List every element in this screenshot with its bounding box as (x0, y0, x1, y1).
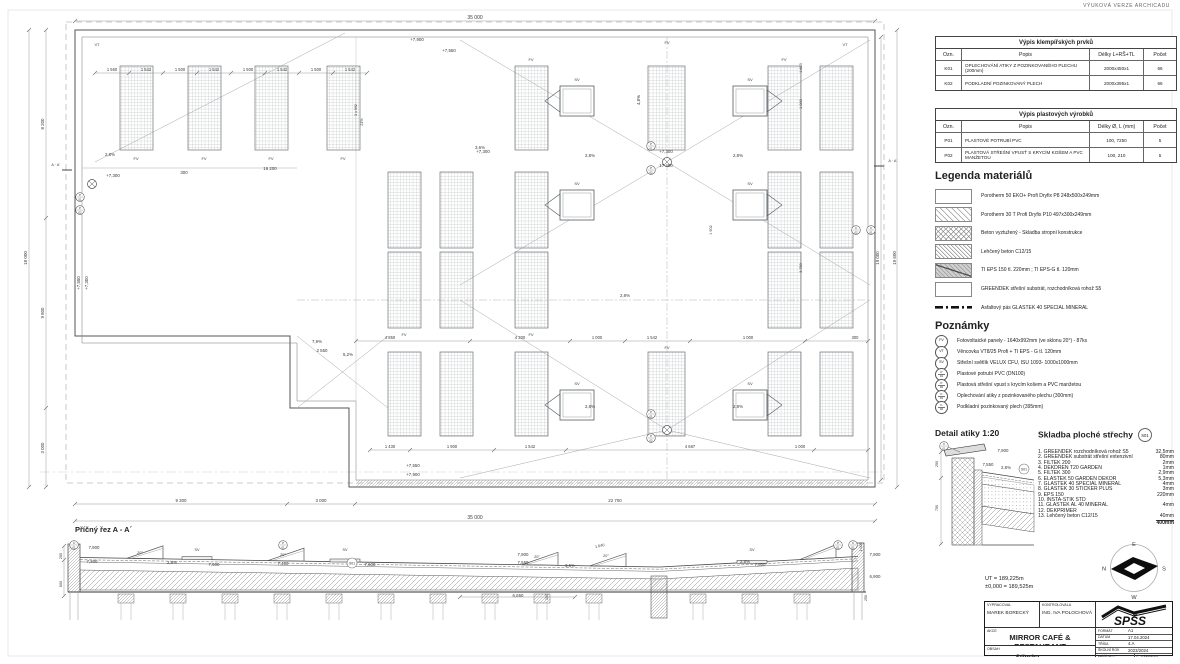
scale-number-row: MĚŘÍTKO 1:50 Č. VÝKRESU 07 (1096, 654, 1172, 657)
annotation-text: SV (574, 381, 580, 386)
project-cell: AKCE MIRROR CAFÉ & RESTAURANT (985, 628, 1096, 646)
drawing-number-cell: Č. VÝKRESU 07 (1135, 654, 1173, 657)
content-cell: OBSAH Střecha (985, 646, 1096, 657)
plan-annotation: K02 (852, 226, 861, 235)
annotation-text: +7,300 (659, 149, 673, 154)
plan-annotation: 2,8% (733, 404, 743, 409)
pv-panel (820, 252, 853, 328)
table-cell: P02 (936, 148, 962, 162)
ref-marker-number: 01 (649, 414, 653, 418)
note-label: Fotovoltaické panely - 1640x992mm (ve sk… (957, 338, 1087, 344)
pv-panel (188, 66, 221, 150)
level-datum: UT = 189,225m ±0,000 = 189,525m (985, 575, 1033, 591)
plan-annotation: 4 300 (515, 335, 526, 340)
section-annotation: 2,8% (167, 560, 177, 565)
plan-annotation: P01 (647, 142, 656, 151)
annotation-text: +7,900 (406, 472, 420, 477)
section-annotation: SV (749, 548, 755, 552)
plan-annotation: 1 500 (175, 67, 186, 72)
annotation-text: 1 542 (647, 335, 658, 340)
note-item: SVStřešní světlík VELUX CFU, ISU 1093- 1… (935, 358, 1078, 368)
note-label: Podkladní pozinkovaný plech (395mm) (957, 404, 1043, 410)
ref-marker-letter: K (870, 226, 872, 230)
zero-level: ±0,000 = 189,525m (985, 583, 1033, 591)
skylight (560, 86, 594, 116)
ref-marker-number: 01 (281, 545, 285, 549)
annotation-text: 20° (534, 555, 540, 559)
plan-annotation: 9 800 (40, 307, 45, 319)
ref-marker-letter: K (855, 226, 857, 230)
detail-annotation: 7,900 (998, 448, 1010, 453)
beam-stub (170, 594, 186, 603)
beam-stub (378, 594, 394, 603)
date-value: 17.04.2024 (1128, 635, 1150, 640)
plan-annotation: 1 000 (799, 99, 803, 109)
annotation-text: 1 500 (311, 67, 322, 72)
annotation-text: +7,900 (410, 37, 424, 42)
column-header: Popis (962, 121, 1090, 132)
ref-marker-letter: P (79, 206, 81, 210)
annotation-text: SV (342, 548, 348, 552)
plan-annotation: 2,8% (585, 153, 595, 158)
legend-item: Porotherm 30 T Profi Dryfix P10 497x300x… (935, 207, 1091, 223)
annotation-text: 7,550 (983, 462, 995, 467)
note-label: Plastové potrubí PVC (DN100) (957, 371, 1025, 377)
annotation-text: 1 542 (277, 67, 288, 72)
format-value: A1 (1128, 628, 1133, 633)
annotation-text: 6,900 (870, 574, 882, 579)
logo-cell: SPŠS (1096, 602, 1172, 628)
annotation-text: 20° (137, 551, 143, 555)
column-header: Délky L+RŠ+TL (1090, 49, 1144, 60)
ref-marker-number: 02 (78, 210, 82, 214)
annotation-text: 20° (603, 554, 609, 558)
annotation-text: 1 823 (799, 63, 803, 73)
plan-annotation: +7,300 (659, 149, 673, 154)
ref-marker-letter: P (650, 410, 652, 414)
plan-annotation: 35 000 (467, 15, 483, 21)
plan-annotation: P01 (647, 410, 656, 419)
ref-marker-letter: K (852, 541, 854, 545)
annotation-text: +7,300 (476, 149, 490, 154)
beam-stub (690, 594, 706, 603)
ref-marker-number: 01 (836, 545, 840, 549)
annotation-text: FV (664, 40, 669, 45)
beam-stub (430, 594, 446, 603)
annotation-text: 9 800 (40, 307, 45, 319)
pv-frame-line (272, 551, 304, 561)
plan-annotation: +7,550 (442, 48, 456, 53)
author-label: VYPRACOVAL (985, 602, 1039, 607)
section-annotation: 7,300 (87, 559, 99, 564)
legend-label: Lehčený beton C12/15 (981, 249, 1031, 255)
marker-number: 01 (940, 375, 943, 378)
pv-frame-line (526, 555, 558, 565)
compass-letter-s: S (1162, 567, 1166, 573)
annotation-text: 7,600 (365, 562, 377, 567)
roof-composition-list: 1. GREENDEK rozchodníková rohož S532,5mm… (1038, 450, 1174, 527)
plan-annotation: 1 900 (447, 444, 458, 449)
plan-annotation: 3 000 (316, 498, 328, 503)
plan-annotation: VT (94, 42, 100, 47)
pv-panel-section (268, 548, 304, 561)
scale-cell: MĚŘÍTKO 1:50 (1096, 654, 1135, 657)
annotation-text: 1 902 (709, 225, 713, 235)
valley-line (460, 162, 667, 285)
detail-annotation: 2,8% (1001, 465, 1011, 470)
annotation-text: 5,2% (343, 352, 353, 357)
pv-panel (820, 352, 853, 436)
note-label: Plastová střešní vpust s krycím košem a … (957, 382, 1081, 388)
annotation-text: 250 (864, 595, 868, 601)
table-cell: 100, 7250 (1090, 133, 1144, 147)
annotation-text: SV (194, 548, 200, 552)
table-cell: P01 (936, 133, 962, 147)
plan-annotation: 2,8% (105, 152, 115, 157)
table-cell: OPLECHOVÁNÍ ATIKY Z POZINKOVANÉHO PLECHU… (962, 61, 1090, 75)
annotation-text: 7,900 (870, 552, 882, 557)
annotation-text: 3,6% (565, 563, 575, 568)
plan-annotation: FV (528, 332, 533, 337)
ref-marker-letter: P (650, 434, 652, 438)
column-header: Popis (962, 49, 1090, 60)
plan-annotation: SV (747, 381, 753, 386)
roof-composition-title: Skladba ploché střechyS01 (1038, 428, 1152, 442)
section-annotation: 20° (534, 555, 540, 559)
detail-annotation: S01 (1019, 464, 1029, 474)
pv-panel-section (800, 545, 836, 560)
plan-annotation: FV (664, 40, 669, 45)
annotation-text: 250 (935, 461, 939, 467)
table-cell: 2000x450x1 (1090, 61, 1144, 75)
annotation-text: SV (749, 548, 755, 552)
plan-annotation: P01 (76, 193, 85, 202)
annotation-text: FV (781, 57, 786, 62)
pv-panel (255, 66, 288, 150)
plan-annotation: +7,300 (84, 276, 89, 290)
section-annotation: 150 (545, 594, 549, 600)
annotation-text: 2 550 (317, 348, 329, 353)
plastic-products-table: Výpis plastových výrobkůOzn.PopisDélky Ø… (935, 108, 1177, 163)
table-cell: 66 (1144, 61, 1176, 75)
annotation-text: 4 300 (515, 335, 526, 340)
parapet-detail-title: Detail atiky 1:20 (935, 428, 999, 438)
table-cell: 100, 210 (1090, 148, 1144, 162)
section-annotation: 7,900 (870, 552, 882, 557)
annotation-text: 7,550 (518, 560, 530, 565)
pv-panel (648, 352, 685, 436)
pv-panel (440, 172, 473, 248)
annotation-text: 1 560 (107, 67, 118, 72)
annotation-text: 2,8% (740, 559, 750, 564)
annotation-text: 2,8% (585, 404, 595, 409)
drawing-sheet: 35 0001 5601 5421 5001 5421 5001 5421 50… (0, 0, 1180, 664)
material-swatch-blank (935, 282, 972, 297)
section-annotation: SV (194, 548, 200, 552)
pv-panel (388, 252, 421, 328)
marker-number: 02 (940, 386, 943, 389)
date-label: DATUM (1096, 635, 1128, 639)
plan-annotation: 2,8% (620, 293, 630, 298)
scale-label: MĚŘÍTKO (1096, 654, 1134, 657)
column-header: Počet (1144, 121, 1176, 132)
annotation-text: FV (340, 156, 345, 161)
plan-annotation: 35 000 (467, 515, 483, 521)
annotation-text: SV (747, 381, 753, 386)
pv-panel (820, 66, 853, 150)
annotation-text: 3 750 (799, 263, 803, 273)
beam-stub (326, 594, 342, 603)
pv-frame-line (131, 548, 163, 558)
skylight (560, 190, 594, 220)
legend-item: Lehčený beton C12/15 (935, 244, 1031, 260)
section-annotation: SV (342, 548, 348, 552)
annotation-text: +7,550 (76, 276, 81, 290)
pv-panel (648, 66, 685, 150)
annotation-text: 8 200 (40, 118, 45, 130)
legend-label: Porotherm 50 EKO+ Profi Dryfix P8 248x50… (981, 193, 1099, 199)
annotation-text: 1 000 (592, 335, 603, 340)
checker-cell: KONTROLOVALA ING. IVA POLOCHOVÁ (1040, 602, 1096, 628)
section-annotation: P01 (834, 541, 843, 550)
material-swatch-diag (935, 207, 972, 222)
note-item: K01Oplechování atiky z pozinkovaného ple… (935, 391, 1073, 401)
plan-annotation: 17 400 (659, 163, 673, 168)
plan-annotation: 5,2% (343, 352, 353, 357)
plan-annotation: 1 430 (385, 444, 396, 449)
annotation-text: 2,8% (1001, 465, 1011, 470)
roof-plan: 35 0001 5601 5421 5001 5421 5001 5421 50… (23, 15, 899, 523)
section-annotation: 7,600 (365, 562, 377, 567)
material-swatch-blank (935, 189, 972, 204)
content-name: Střecha (1014, 654, 1040, 657)
annotation-text: 7,900 (518, 552, 530, 557)
format-label: FORMÁT (1096, 629, 1128, 633)
annotation-text: FV (528, 332, 533, 337)
annotation-text: VT (94, 42, 100, 47)
plan-annotation: 1 542 (525, 444, 536, 449)
plan-annotation: 300 (180, 170, 188, 175)
annotation-text: 1 542 (345, 67, 356, 72)
annotation-text: 6,650 (513, 593, 525, 598)
section-annotation: 7,400 (278, 561, 290, 566)
compass-rose: ENSW (1102, 542, 1166, 601)
annotation-text: 1 542 (525, 444, 536, 449)
annotation-text: A · A´ (888, 159, 897, 163)
cross-section: K017,9007,30025060020°2,8%SV7,60020°P017… (59, 541, 881, 620)
pv-panel (515, 66, 548, 150)
archicad-watermark: VÝUKOVÁ VERZE ARCHICADU (1083, 3, 1170, 9)
annotation-text: 4 687 (685, 444, 696, 449)
section-annotation: 250 (59, 553, 63, 559)
plan-annotation: A · A´ (888, 159, 897, 163)
roof-composition-title-text: Skladba ploché střechy (1038, 429, 1133, 439)
compass-letter-e: E (1132, 542, 1136, 548)
section-annotation: 20° (137, 551, 143, 555)
pv-panel (120, 66, 153, 150)
ref-marker-number: 02 (649, 170, 653, 174)
column-header: Délky Ø, L (mm) (1090, 121, 1144, 132)
note-label: Střešní světlík VELUX CFU, ISU 1093- 100… (957, 360, 1078, 366)
annotation-text: 3 000 (40, 442, 45, 454)
annotation-text: 3 000 (316, 498, 328, 503)
plan-annotation: FV (528, 57, 533, 62)
annotation-text: 7,600 (209, 562, 221, 567)
annotation-text: 18 000 (23, 251, 28, 265)
plan-annotation: P02 (647, 434, 656, 443)
badge-text: S01 (1021, 467, 1027, 471)
cad-drawing-svg: 35 0001 5601 5421 5001 5421 5001 5421 50… (0, 0, 1180, 664)
legend-label: GREENDEK střešní substrát, rozchodníková… (981, 286, 1101, 292)
sheet-metal-table-title: Výpis klempířských prvků (936, 37, 1176, 49)
annotation-text: 1 000 (743, 335, 754, 340)
plan-annotation: 3 000 (40, 442, 45, 454)
class-label: TŘÍDA (1096, 642, 1128, 646)
plan-annotation: 1 542 (647, 335, 658, 340)
note-item: K02Podkladní pozinkovaný plech (395mm) (935, 402, 1043, 412)
note-item: FVFotovoltaické panely - 1640x992mm (ve … (935, 336, 1087, 346)
legend-item: TI EPS 150 tl. 220mm ; TI EPS-G tl. 120m… (935, 262, 1079, 278)
plan-annotation: 9 300 (176, 498, 188, 503)
legend-label: Porotherm 30 T Profi Dryfix P10 497x300x… (981, 212, 1091, 218)
ref-marker-number: 01 (851, 545, 855, 549)
plan-annotation: 4 850 (385, 335, 396, 340)
detail-annotation: 7,550 (983, 462, 995, 467)
annotation-text: 7,900 (998, 448, 1010, 453)
parapet-wall (952, 458, 974, 545)
plan-annotation: FV (133, 156, 138, 161)
pv-panel (388, 172, 421, 248)
beam-stub (794, 594, 810, 603)
material-swatch-cross (935, 226, 972, 241)
annotation-text: 16 200 (263, 166, 277, 171)
pv-panel (768, 352, 801, 436)
legend-item: GREENDEK střešní substrát, rozchodníková… (935, 281, 1101, 297)
annotation-text: 7,300 (87, 559, 99, 564)
plastic-table-title: Výpis plastových výrobků (936, 109, 1176, 121)
table-cell: 5 (1144, 133, 1176, 147)
detail-annotation: K01 (940, 442, 949, 451)
logo-text: SPŠS (1114, 613, 1146, 628)
note-label: Oplechování atiky z pozinkovaného plechu… (957, 393, 1073, 399)
ref-marker-letter: P (837, 541, 839, 545)
annotation-text: 2,8% (167, 560, 177, 565)
plan-annotation: 1 500 (311, 67, 322, 72)
schoolyear-value: 2023/2024 (1128, 648, 1148, 653)
annotation-text: FV (268, 156, 273, 161)
plan-annotation: 1 500 (243, 67, 254, 72)
plan-annotation: P02 (647, 166, 656, 175)
annotation-text: SV (747, 77, 753, 82)
section-annotation: 7,900 (89, 545, 101, 550)
annotation-text: 1 640 (595, 543, 605, 549)
pv-panel (515, 352, 548, 436)
annotation-text: 9 300 (176, 498, 188, 503)
plan-annotation: 18 000 (23, 251, 28, 265)
column-header: Ozn. (936, 121, 962, 132)
plan-annotation: +7,300 (106, 173, 120, 178)
ref-marker-number: 01 (649, 146, 653, 150)
annotation-text: 750 (935, 505, 939, 511)
legend-item: Asfaltový pás GLASTEK 40 SPECIAL MINERAL (935, 300, 1088, 316)
ref-marker-letter: P (650, 166, 652, 170)
plan-annotation: 19 000 (875, 251, 880, 265)
section-annotation: P01 (279, 541, 288, 550)
checker-label: KONTROLOVALA (1040, 602, 1095, 607)
valley-line (667, 430, 870, 478)
annotation-text: 7,600 (755, 562, 767, 567)
ref-marker-number: 01 (78, 197, 82, 201)
annotation-text: 1 000 (799, 99, 803, 109)
annotation-text: FV (664, 345, 669, 350)
note-item: P01Plastové potrubí PVC (DN100) (935, 369, 1025, 379)
plan-annotation: +7,900 (406, 472, 420, 477)
author-name: MAREK BORECKÝ (985, 611, 1039, 616)
annotation-text: 300 (852, 335, 860, 340)
title-block: VYPRACOVAL MAREK BORECKÝ KONTROLOVALA IN… (984, 601, 1173, 656)
pv-panel (440, 252, 473, 328)
plan-annotation: 1 000 (592, 335, 603, 340)
skylight (733, 86, 767, 116)
checker-name: ING. IVA POLOCHOVÁ (1040, 611, 1095, 616)
section-annotation: 7,600 (755, 562, 767, 567)
composition-total: 400mm (1038, 519, 1174, 526)
annotation-text: 7,9% (312, 339, 322, 344)
legend-label: Asfaltový pás GLASTEK 40 SPECIAL MINERAL (981, 305, 1088, 311)
annotation-text: 17 400 (659, 163, 673, 168)
table-cell: 5 (1144, 148, 1176, 162)
section-annotation: 7,550 (518, 560, 530, 565)
section-annotation: 7,600 (209, 562, 221, 567)
annotation-text: +7,300 (106, 173, 120, 178)
project-name: MIRROR CAFÉ & RESTAURANT (985, 633, 1095, 646)
plan-annotation: FV (340, 156, 345, 161)
legend-item: Beton vyztužený - Skladba stropní konstr… (935, 225, 1082, 241)
plan-annotation: SV (747, 181, 753, 186)
annotation-text: SV (747, 181, 753, 186)
ref-marker-number: 01 (942, 446, 946, 450)
plan-annotation: 1 542 (209, 67, 220, 72)
skylight-section (182, 557, 212, 560)
plan-annotation: SV (574, 181, 580, 186)
annotation-text: FV (133, 156, 138, 161)
meta-cell: FORMÁT A1 DATUM 17.04.2024 TŘÍDA 4.A ŠKO… (1096, 628, 1172, 657)
annotation-text: 1 542 (209, 67, 220, 72)
annotation-text: 35 000 (467, 15, 483, 21)
plan-annotation: A · A´ (51, 163, 60, 167)
ref-marker-letter: K (73, 541, 75, 545)
plan-annotation: FV (201, 156, 206, 161)
annotation-text: 4,8% (636, 95, 641, 105)
plan-annotation: 2 550 (317, 348, 329, 353)
plastic-table-header-row: Ozn.PopisDélky Ø, L (mm)Počet (936, 121, 1176, 133)
plan-annotation: 3 750 (799, 263, 803, 273)
beam-stub (742, 594, 758, 603)
coping (944, 444, 986, 456)
annotation-text: A · A´ (51, 163, 60, 167)
table-cell: 2000x395x1 (1090, 76, 1144, 90)
note-marker: K02 (935, 401, 948, 414)
materials-legend-title: Legenda materiálů (935, 170, 1032, 182)
plan-annotation: 7,9% (312, 339, 322, 344)
plan-annotation: FV (401, 332, 406, 337)
class-value: 4.A (1128, 641, 1134, 646)
annotation-text: +7,300 (84, 276, 89, 290)
sheet-metal-elements-table: Výpis klempířských prvkůOzn.PopisDélky L… (935, 36, 1177, 91)
pv-panel (515, 252, 548, 328)
sheet-metal-table-row: K01OPLECHOVÁNÍ ATIKY Z POZINKOVANÉHO PLE… (936, 61, 1176, 76)
plan-annotation: +7,300 (476, 149, 490, 154)
